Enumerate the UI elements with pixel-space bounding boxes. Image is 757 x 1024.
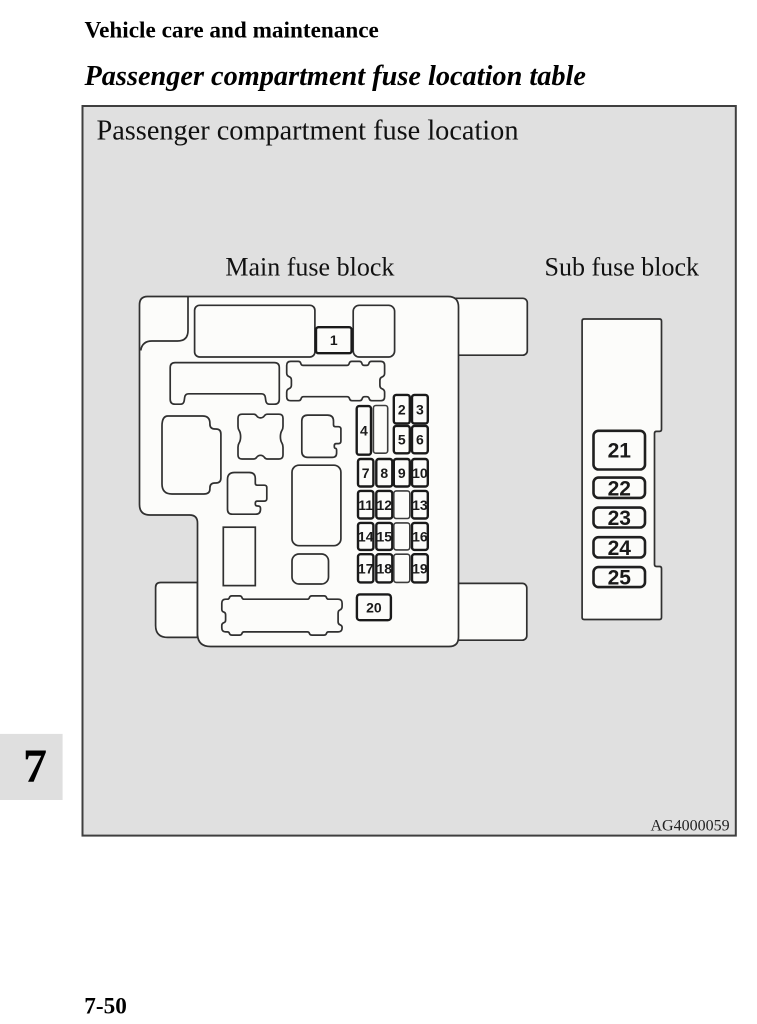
svg-text:12: 12: [377, 497, 393, 513]
svg-text:22: 22: [608, 477, 631, 500]
svg-text:Main fuse block: Main fuse block: [225, 252, 394, 281]
svg-text:25: 25: [608, 567, 632, 590]
svg-text:24: 24: [608, 537, 632, 560]
svg-text:9: 9: [398, 465, 406, 481]
svg-text:13: 13: [412, 497, 428, 513]
svg-text:8: 8: [380, 465, 388, 481]
svg-text:AG4000059: AG4000059: [650, 817, 729, 834]
svg-text:17: 17: [358, 560, 374, 576]
svg-text:6: 6: [416, 432, 424, 448]
svg-text:Vehicle care and maintenance: Vehicle care and maintenance: [85, 18, 379, 44]
svg-text:Passenger compartment fuse loc: Passenger compartment fuse location: [97, 116, 519, 147]
svg-text:7: 7: [23, 740, 47, 793]
svg-text:3: 3: [416, 401, 424, 417]
svg-text:15: 15: [377, 529, 393, 545]
svg-text:23: 23: [608, 507, 631, 530]
svg-text:14: 14: [358, 529, 374, 545]
svg-text:11: 11: [358, 497, 373, 513]
svg-text:19: 19: [412, 560, 428, 576]
svg-text:Passenger compartment fuse loc: Passenger compartment fuse location tabl…: [84, 61, 586, 92]
svg-text:5: 5: [398, 432, 406, 448]
svg-text:10: 10: [412, 465, 428, 481]
svg-text:7-50: 7-50: [84, 994, 127, 1020]
svg-text:21: 21: [608, 440, 632, 463]
svg-text:16: 16: [412, 529, 428, 545]
svg-text:4: 4: [360, 423, 368, 439]
svg-text:7: 7: [362, 465, 370, 481]
svg-text:18: 18: [377, 560, 393, 576]
svg-text:1: 1: [330, 332, 338, 348]
svg-text:20: 20: [366, 599, 382, 615]
svg-text:2: 2: [398, 401, 406, 417]
svg-text:Sub fuse block: Sub fuse block: [545, 252, 700, 281]
